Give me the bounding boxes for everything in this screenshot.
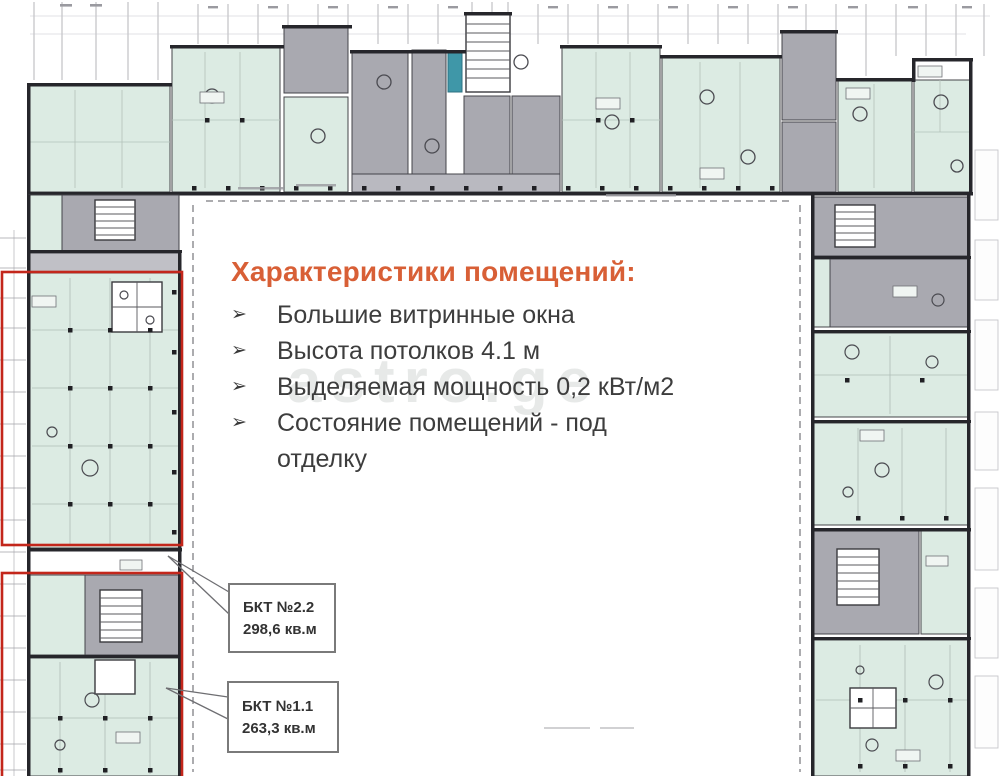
stairwell-top (466, 14, 510, 92)
unit-label-bkt-2-2: БКТ №2.2 298,6 кв.м (228, 583, 336, 653)
unit-area: 298,6 кв.м (243, 620, 334, 639)
unit-name: БКТ №1.1 (242, 697, 337, 716)
list-item: ➢ Выделяемая мощность 0,2 кВт/м2 (231, 369, 723, 405)
feature-text: Большие витринные окна (277, 297, 575, 333)
arrow-bullet-icon: ➢ (231, 369, 277, 405)
right-fringe (975, 150, 998, 748)
unit-label-bkt-1-1: БКТ №1.1 263,3 кв.м (227, 681, 339, 753)
feature-text: Выделяемая мощность 0,2 кВт/м2 (277, 369, 674, 405)
floor-plan-page: astro.ge Характеристики помещений: ➢ Бол… (0, 0, 1000, 776)
list-item: ➢ Большие витринные окна (231, 297, 723, 333)
feature-list: ➢ Большие витринные окна ➢ Высота потолк… (231, 297, 723, 477)
right-wing (811, 195, 971, 776)
list-item: ➢ Состояние помещений - под отделку (231, 405, 723, 477)
feature-text: Высота потолков 4.1 м (277, 333, 540, 369)
arrow-bullet-icon: ➢ (231, 405, 277, 441)
left-wing (27, 195, 182, 776)
margin-grid-left (0, 230, 26, 776)
unit-area: 263,3 кв.м (242, 719, 337, 738)
feature-text: Состояние помещений - под отделку (277, 405, 607, 477)
highlighted-room (448, 52, 462, 92)
unit-name: БКТ №2.2 (243, 598, 334, 617)
page-title: Характеристики помещений: (231, 256, 723, 288)
arrow-bullet-icon: ➢ (231, 297, 277, 333)
list-item: ➢ Высота потолков 4.1 м (231, 333, 723, 369)
info-panel: Характеристики помещений: ➢ Большие витр… (231, 256, 723, 477)
arrow-bullet-icon: ➢ (231, 333, 277, 369)
